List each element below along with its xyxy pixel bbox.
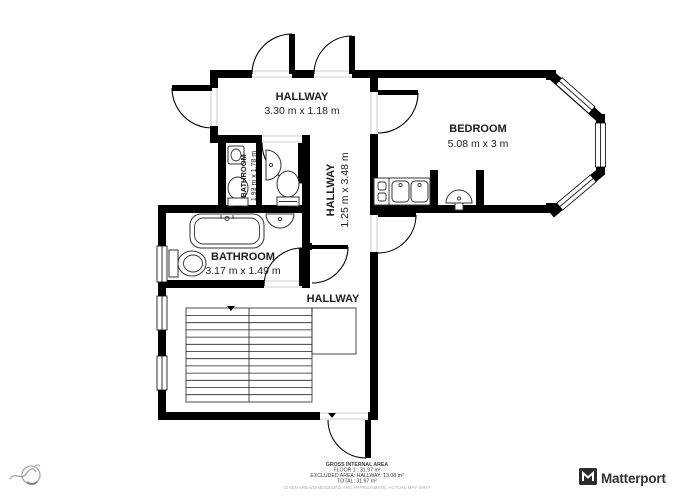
- door-entry: [328, 420, 371, 458]
- stair-landing: [312, 308, 356, 354]
- room-label-bathroom-small: BATHROOM: [239, 154, 248, 198]
- matterport-wordmark: Matterport: [601, 471, 666, 486]
- kitchen-counter: [374, 178, 430, 205]
- bay-window-bottom: [557, 175, 596, 210]
- sink-bathroom: [266, 214, 294, 228]
- door-top-1: [252, 34, 295, 74]
- door-left-exterior: [172, 85, 212, 128]
- bay-window-right: [596, 123, 606, 167]
- door-corridor-junction: [312, 245, 348, 283]
- bay-window-top: [556, 78, 595, 114]
- room-label-hallway-top: HALLWAY: [276, 91, 329, 103]
- door-top-2: [314, 36, 355, 74]
- room-dims-hallway-top: 3.30 m x 1.18 m: [264, 105, 340, 117]
- staircase: [186, 308, 312, 402]
- room-label-bedroom: BEDROOM: [449, 123, 506, 135]
- floor-plan-page: HALLWAY 3.30 m x 1.18 m BEDROOM 5.08 m x…: [0, 0, 700, 500]
- door-corridor-right: [378, 212, 416, 253]
- toilet-wc-middle: [277, 171, 299, 206]
- area-summary-disclaimer: GIVEN AREA/DIMENSIONS ARE APPROXIMATE, A…: [284, 485, 431, 490]
- room-dims-hallway-vertical: 1.25 m x 3.48 m: [339, 152, 351, 228]
- toilet-bathroom: [169, 250, 206, 277]
- room-dims-bathroom: 3.17 m x 1.49 m: [205, 265, 281, 277]
- area-summary-total: TOTAL: 31.97 m²: [337, 479, 377, 485]
- window-bathroom: [157, 246, 167, 282]
- agency-logo: [10, 465, 40, 484]
- matterport-logo: Matterport: [579, 468, 666, 486]
- area-summary: GROSS INTERNAL AREA FLOOR 1 : 31.97 m² E…: [284, 462, 431, 490]
- door-bedroom: [378, 90, 418, 133]
- room-dims-bedroom: 5.08 m x 3 m: [448, 138, 509, 150]
- window-hallway-1: [157, 296, 167, 330]
- room-label-hallway-bottom: HALLWAY: [307, 293, 360, 305]
- bathtub: [190, 214, 264, 248]
- floor-plan-canvas: HALLWAY 3.30 m x 1.18 m BEDROOM 5.08 m x…: [0, 0, 700, 500]
- matterport-cube-icon: [579, 468, 597, 485]
- room-dims-bathroom-small: 1.93 m x 1.78 m: [251, 151, 258, 201]
- window-hallway-2: [157, 356, 167, 390]
- room-label-bathroom: BATHROOM: [211, 251, 275, 263]
- room-label-hallway-vertical: HALLWAY: [325, 163, 337, 216]
